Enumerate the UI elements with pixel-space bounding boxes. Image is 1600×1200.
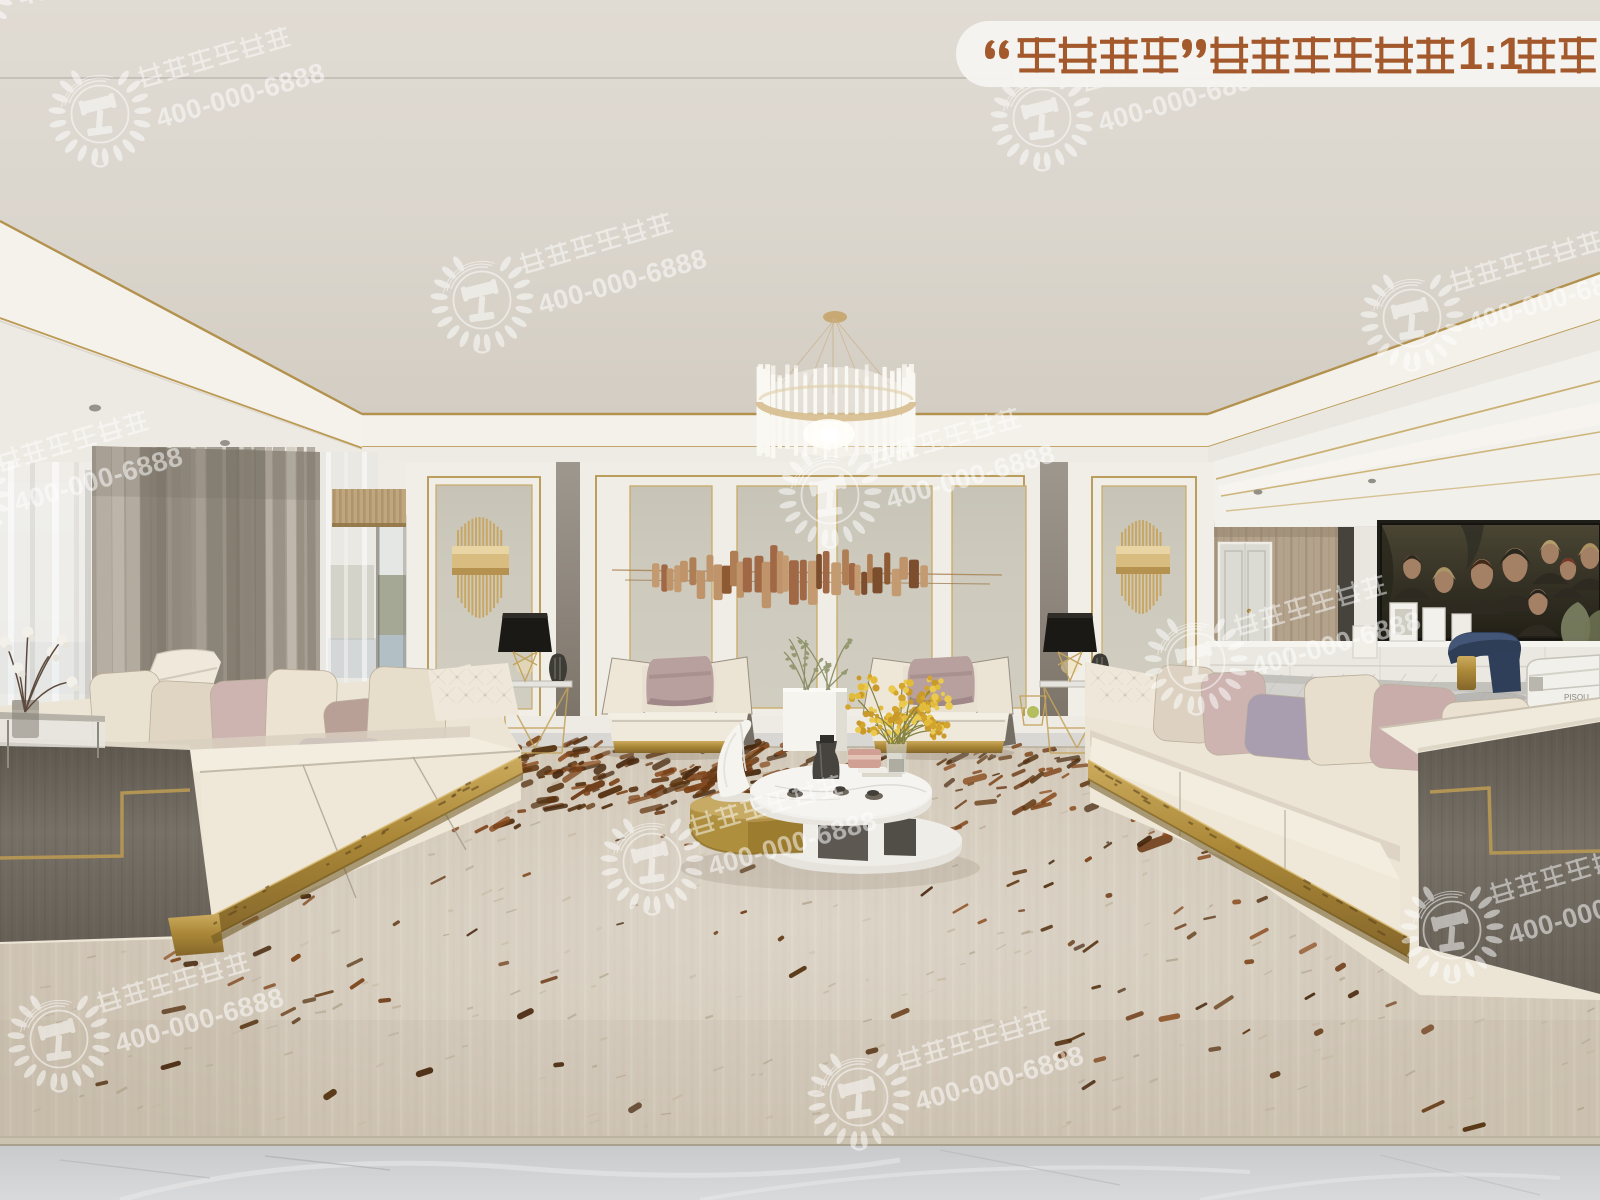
- svg-text:1:1: 1:1: [1458, 28, 1523, 79]
